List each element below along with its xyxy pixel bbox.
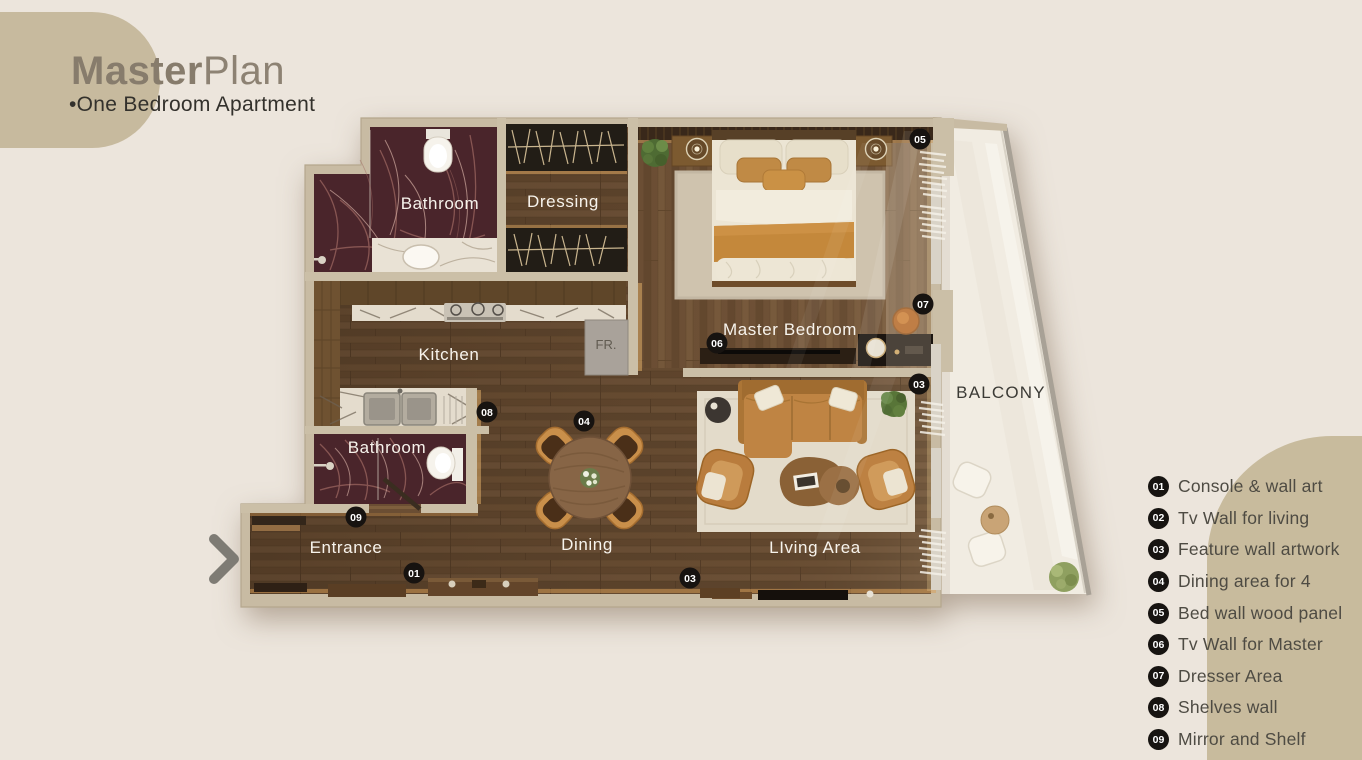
svg-text:01: 01 [408, 568, 420, 580]
svg-text:Kitchen: Kitchen [419, 345, 480, 364]
svg-text:FR.: FR. [596, 337, 617, 352]
svg-text:04: 04 [578, 416, 590, 428]
svg-text:Dining: Dining [561, 535, 613, 554]
svg-text:07: 07 [917, 299, 929, 311]
svg-text:Bathroom: Bathroom [348, 438, 427, 457]
svg-text:Bathroom: Bathroom [401, 194, 480, 213]
svg-text:05: 05 [914, 134, 926, 146]
svg-text:03: 03 [684, 573, 696, 585]
svg-text:Entrance: Entrance [310, 538, 383, 557]
svg-text:06: 06 [711, 338, 723, 350]
svg-text:08: 08 [481, 407, 493, 419]
svg-text:LIving Area: LIving Area [769, 538, 861, 557]
svg-text:Dressing: Dressing [527, 192, 599, 211]
svg-text:09: 09 [350, 512, 362, 524]
svg-text:Master Bedroom: Master Bedroom [723, 320, 857, 339]
svg-text:03: 03 [913, 379, 925, 391]
svg-text:BALCONY: BALCONY [956, 383, 1046, 402]
